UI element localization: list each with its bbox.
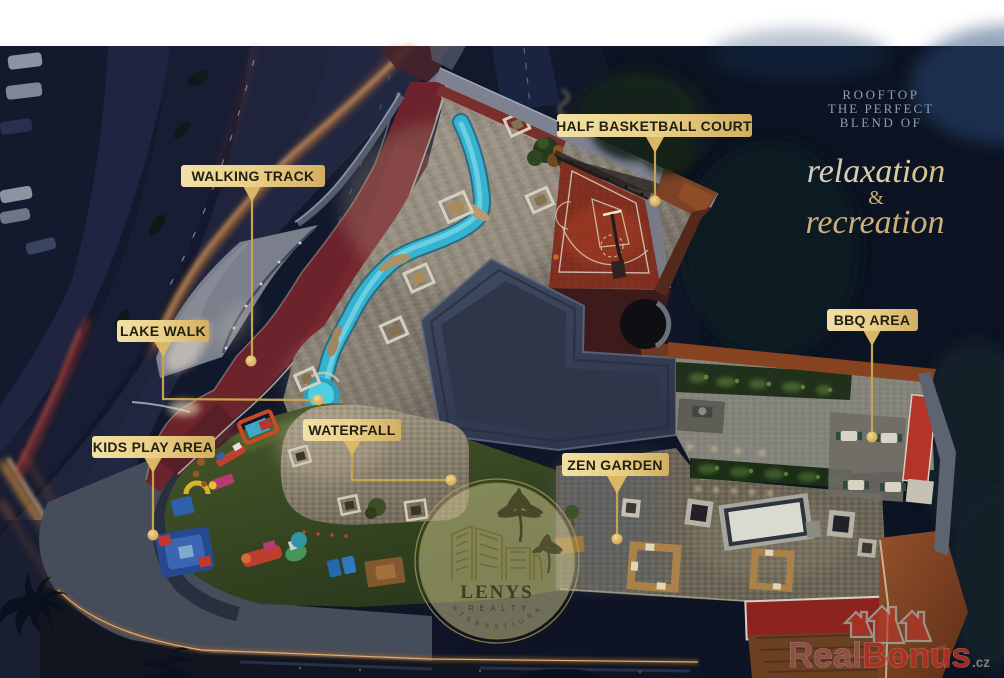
svg-text:ROOFTOP: ROOFTOP	[842, 87, 919, 102]
svg-text:LAKE WALK: LAKE WALK	[120, 323, 206, 339]
svg-text:ZEN GARDEN: ZEN GARDEN	[567, 457, 663, 473]
svg-text:BLEND OF: BLEND OF	[840, 115, 922, 130]
svg-text:.cz: .cz	[972, 655, 990, 670]
svg-text:WALKING TRACK: WALKING TRACK	[192, 168, 315, 184]
svg-text:RealBonus: RealBonus	[788, 636, 971, 675]
svg-text:LENYS: LENYS	[460, 582, 533, 603]
svg-text:HALF BASKETBALL COURT: HALF BASKETBALL COURT	[556, 118, 752, 134]
svg-text:THE PERFECT: THE PERFECT	[828, 101, 934, 116]
svg-text:WATERFALL: WATERFALL	[308, 422, 395, 438]
svg-text:KIDS PLAY AREA: KIDS PLAY AREA	[93, 439, 213, 455]
svg-text:relaxation: relaxation	[807, 153, 946, 190]
svg-text:BBQ AREA: BBQ AREA	[834, 312, 911, 328]
svg-text:REALTY: REALTY	[468, 604, 532, 613]
svg-text:recreation: recreation	[805, 204, 944, 241]
